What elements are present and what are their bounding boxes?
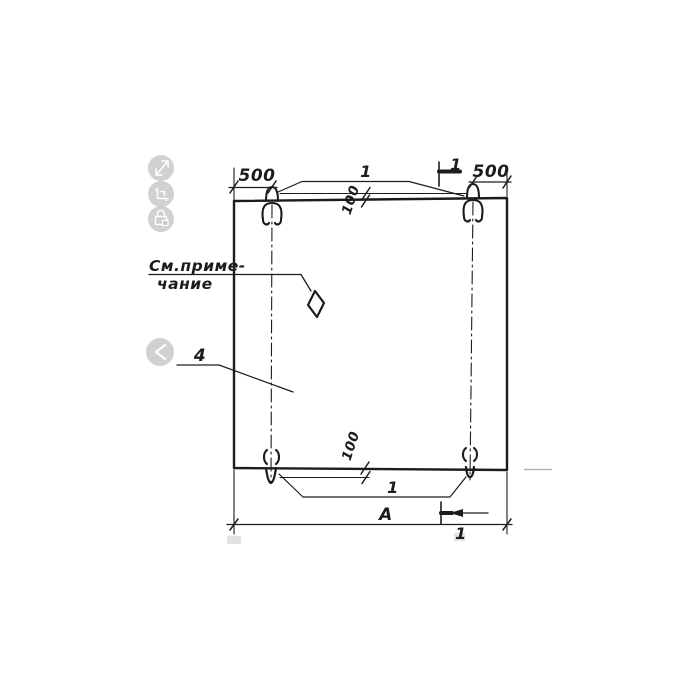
panel-outline [234, 198, 507, 470]
expand-button[interactable] [148, 155, 174, 181]
previous-image-button[interactable] [146, 338, 174, 366]
dimension-overall-width: А [227, 470, 512, 534]
callout-label-bottom-loops: 1 [387, 478, 399, 497]
note-diamond-symbol [308, 291, 324, 317]
dimension-bottom-100: 100 [280, 429, 370, 483]
loop-center-lines [271, 202, 473, 483]
image-viewer-canvas: 500 500 100 1 1 См.приме- чание 4 [0, 0, 700, 700]
dim-label-500-left: 500 [239, 166, 276, 186]
callout-label-panel: 4 [193, 346, 206, 366]
dim-label-100-bottom: 100 [339, 429, 363, 462]
section-label-bottom: 1 [455, 524, 467, 543]
dimension-top-left-500: 500 [229, 166, 277, 200]
callout-label-top-loops: 1 [360, 162, 372, 181]
callout-note: См.приме- чание [149, 257, 324, 317]
dimension-top-right-500: 500 [469, 162, 511, 196]
note-line1: См.приме- [149, 257, 246, 275]
section-arrow [450, 509, 463, 517]
section-mark-top: 1 [439, 155, 462, 186]
lock-button[interactable] [148, 206, 174, 232]
dim-label-overall-width: А [377, 505, 393, 525]
section-mark-bottom: 1 [441, 502, 488, 543]
dim-label-500-right: 500 [473, 162, 510, 182]
crop-button[interactable] [148, 181, 174, 207]
callout-top-loops: 1 [278, 162, 464, 196]
note-line2: чание [157, 275, 213, 293]
smudge-left [227, 536, 241, 544]
viewer-toolbar [148, 155, 174, 232]
section-label-top: 1 [450, 155, 462, 174]
technical-drawing: 500 500 100 1 1 См.приме- чание 4 [0, 0, 700, 700]
